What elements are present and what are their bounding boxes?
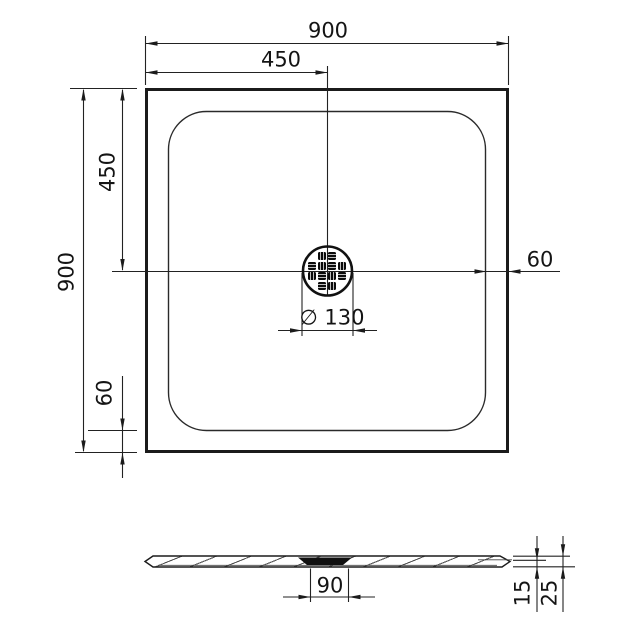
drain-grate [308,252,346,290]
drain-grate-tile [308,272,316,280]
arrow-down-icon [561,544,565,556]
dim-label-side-rim-height: 15 [513,580,534,607]
side-section-view [145,556,512,567]
drain-grate-tile [318,282,326,290]
dim-label-left-half-height: 450 [98,152,119,192]
arrow-up-icon [561,567,565,579]
arrow-down-icon [535,548,539,560]
drain-grate-tile [328,272,336,280]
arrow-down-icon [81,441,85,453]
arrow-right-icon [316,70,328,74]
arrow-up-icon [535,567,539,579]
arrow-down-icon [120,419,124,431]
drain-grate-tile [338,272,346,280]
drain-grate-tile [328,282,336,290]
arrow-up-icon [120,453,124,465]
arrow-left-icon [509,269,521,273]
drain-grate-tile [318,262,326,270]
dim-label-left-height: 900 [57,252,78,292]
dim-label-left-edge-inset: 60 [95,380,116,407]
arrow-right-icon [299,595,311,599]
arrow-left-icon [349,595,361,599]
arrow-left-icon [146,41,158,45]
arrow-down-icon [120,259,124,271]
drain-grate-tile [318,272,326,280]
dim-label-side-drain-width: 90 [317,576,344,597]
drain-grate-tile [338,262,346,270]
dim-label-top-width: 900 [308,21,348,42]
arrow-up-icon [81,89,85,101]
dim-label-drain-diameter: ∅ 130 [299,308,364,329]
technical-drawing-canvas: 900 450 900 450 60 60 ∅ 130 90 15 25 [0,0,638,638]
dim-label-side-total-height: 25 [540,580,561,607]
drain-grate-tile [328,252,336,260]
drain-grate-tile [328,262,336,270]
drain-grate-tile [318,252,326,260]
arrow-left-icon [146,70,158,74]
dim-label-right-edge-inset: 60 [527,250,554,271]
arrow-right-icon [497,41,509,45]
drain-grate-tile [308,262,316,270]
arrow-right-icon [475,269,487,273]
arrow-up-icon [120,89,124,101]
dim-left-half-height [120,89,124,272]
section-drain-recess [298,558,352,566]
dim-label-top-half-width: 450 [261,50,301,71]
